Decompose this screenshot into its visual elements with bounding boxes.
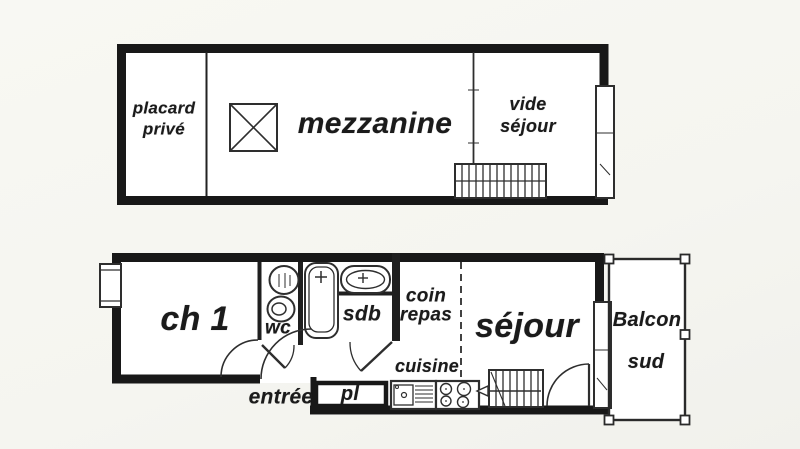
label-sejour: séjour [475,309,579,343]
label-vide-sejour-line2: séjour [500,117,556,135]
label-wc: wc [265,319,291,338]
upper-stairs-icon [455,164,546,198]
label-coin-repas-line1: coin [406,287,446,306]
kitchen-sink-icon [391,381,436,409]
label-pl: pl [341,384,359,404]
upper-window-bay-icon [596,86,614,198]
label-placard-prive-line2: privé [143,121,185,138]
label-coin-repas-line2: repas [400,306,452,325]
label-entree: entrée [249,387,314,408]
ch1-window-icon [100,264,121,307]
label-sdb: sdb [343,304,381,325]
label-balcon-line1: Balcon [613,310,681,330]
bathtub-icon [305,263,338,338]
label-balcon-line2: sud [628,352,664,372]
label-ch1: ch 1 [160,302,229,336]
label-cuisine: cuisine [395,357,459,375]
label-vide-sejour-line1: vide [509,95,546,113]
floor-opening-icon [230,104,277,151]
label-mezzanine: mezzanine [298,109,452,139]
label-placard-prive-line1: placard [133,100,196,117]
stove-icon [436,381,479,409]
sdb-washbasin-icon [341,266,390,293]
floorplan-drawing [0,0,800,449]
floorplan-page: placard privé mezzanine vide séjour ch 1… [0,0,800,449]
